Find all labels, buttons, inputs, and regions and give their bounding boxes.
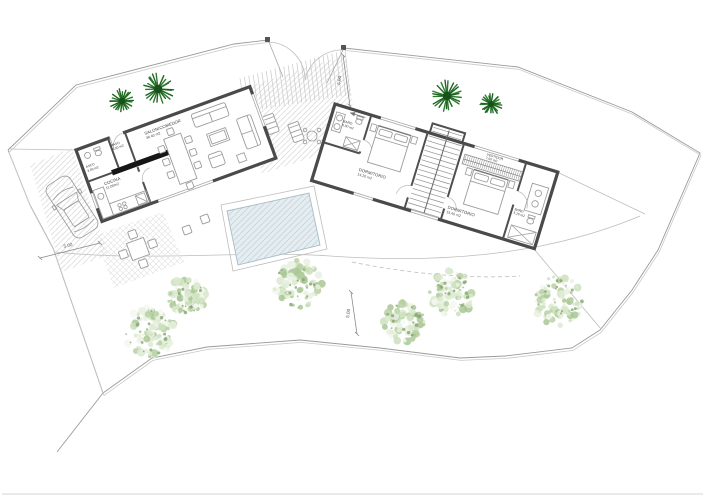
floor-plan-svg: SALON/COMEDOR 36.40 m2 PASO 1.50 m2 ASEO… (0, 0, 705, 497)
palm-tree-icon (110, 89, 133, 112)
boundary-spur (57, 393, 103, 452)
garden-tree-icon (534, 274, 584, 327)
garden-trees (124, 258, 584, 358)
garden-tree-icon (167, 277, 209, 315)
dimension-garden: 5.00 (345, 290, 359, 336)
garden-tree-icon (272, 258, 326, 310)
right-wing: BAÑO 5.00 m2 DORMITORIO 14.20 m2 VESTIDO… (311, 94, 561, 250)
fence-left (10, 149, 76, 150)
garden-tree-icon (428, 267, 475, 317)
garden-chair (200, 214, 210, 224)
garden-chair (182, 225, 192, 235)
palm-tree-icon (144, 73, 174, 103)
garden-tree-icon (124, 304, 177, 358)
left-wing: SALON/COMEDOR 36.40 m2 PASO 1.50 m2 ASEO… (73, 84, 278, 224)
floor-plan: SALON/COMEDOR 36.40 m2 PASO 1.50 m2 ASEO… (0, 0, 705, 497)
palm-tree-icon (433, 80, 461, 111)
fence-right-top (557, 172, 645, 214)
dimension-label: 5.00 (345, 308, 351, 318)
garden-tree-icon (380, 299, 426, 345)
swimming-pool (221, 186, 327, 271)
palm-tree-icon (480, 94, 502, 114)
